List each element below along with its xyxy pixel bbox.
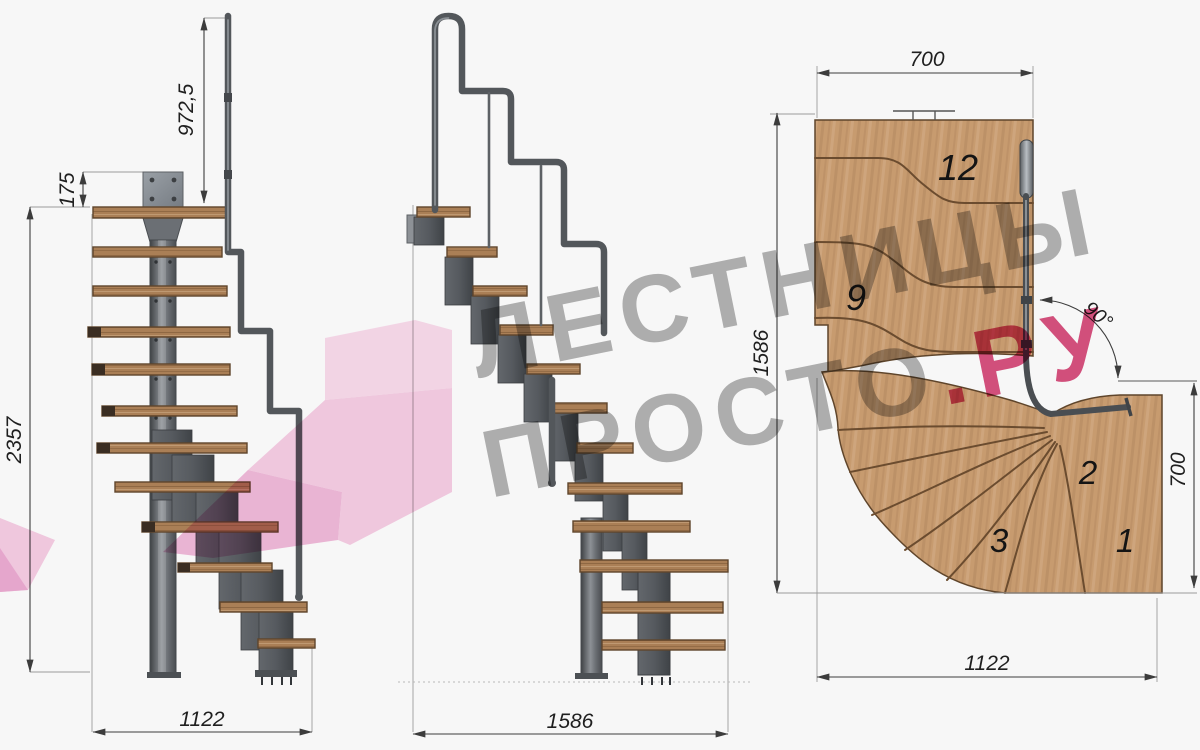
step-label-1: 1 (1116, 522, 1134, 559)
arrow-facet (325, 320, 452, 400)
dim-width: 1586 (547, 710, 594, 733)
bolt-hole (172, 197, 177, 202)
stair-drawing-canvas: 972,5 175 2357 1122 (0, 0, 1200, 750)
step-label-2: 2 (1078, 454, 1097, 491)
step-label-12: 12 (938, 147, 978, 188)
rail-end-cap (295, 593, 303, 601)
left-elevation-view: 972,5 175 2357 1122 (3, 16, 315, 732)
dim-width: 1122 (179, 708, 224, 731)
column-foot (575, 673, 608, 679)
tread-end-cap (142, 522, 155, 532)
bolt-hole (150, 178, 155, 183)
tread-end-cap (97, 443, 110, 453)
anchor-bolts (642, 677, 670, 685)
dim-rail-height: 972,5 (175, 83, 198, 136)
bolt-hole (150, 197, 155, 202)
dim-total-height: 2357 (3, 415, 26, 464)
module-foot (255, 670, 297, 677)
rail-joint-collar (224, 170, 232, 179)
column-foot (147, 672, 181, 678)
mounting-plate (143, 172, 183, 207)
modular-staircase-blueprint: 972,5 175 2357 1122 (0, 0, 1200, 750)
dim-top: 700 (909, 48, 944, 71)
tread-end-cap (178, 563, 190, 572)
anchor-bolts (262, 677, 291, 685)
watermark-arrow (0, 320, 452, 592)
bolt-hole (172, 178, 177, 183)
dim-plate: 175 (56, 172, 79, 207)
dim-right: 700 (1167, 452, 1190, 487)
tread-end-cap (88, 327, 101, 337)
module-stack (638, 560, 670, 675)
tread-end-cap (102, 406, 115, 416)
dim-bottom: 1122 (964, 652, 1009, 675)
column-head (143, 218, 183, 242)
middle-view-dimensions: 1586 (413, 710, 728, 734)
floor-bracket (893, 111, 955, 120)
support-column (581, 518, 602, 675)
rail-joint-collar (224, 93, 232, 102)
stair-structure-side (88, 16, 315, 685)
tread-end-cap (92, 364, 105, 375)
step-label-3: 3 (990, 522, 1009, 559)
